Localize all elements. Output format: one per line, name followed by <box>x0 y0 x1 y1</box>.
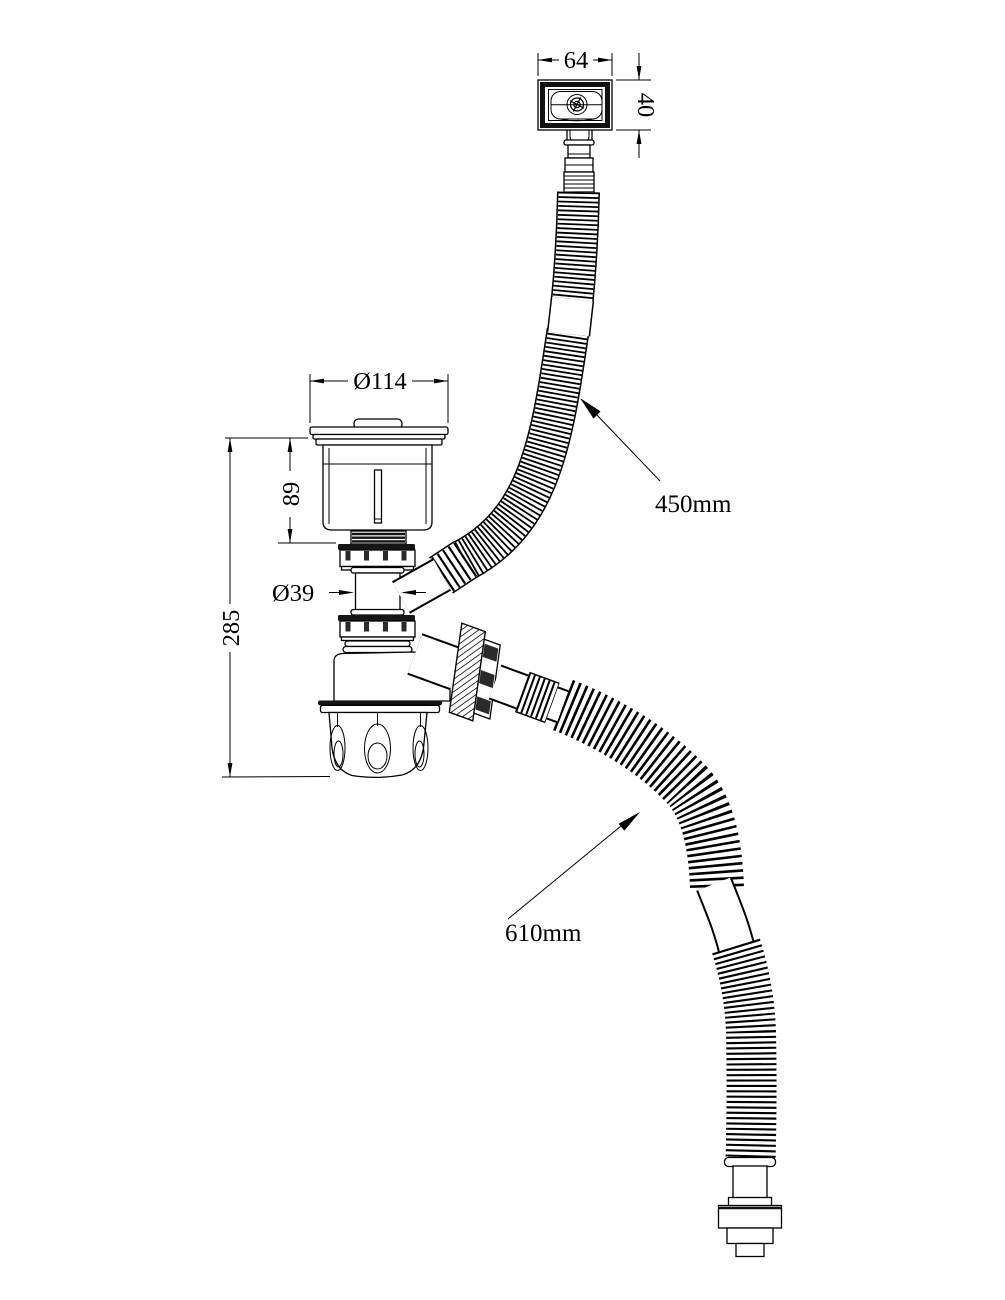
sink-strainer <box>310 419 448 544</box>
dim-text-strainer-height: 89 <box>278 482 305 507</box>
drain-hose-610 <box>563 705 782 1257</box>
dimension-overall-height: 285 <box>218 438 330 777</box>
label-overflow-hose-length: 450mm <box>655 491 732 518</box>
leader-overflow-hose-length: 450mm <box>580 398 732 518</box>
leader-drain-hose-length: 610mm <box>505 812 640 947</box>
outlet-branch-cuff <box>522 692 562 707</box>
leader-arrowhead <box>619 812 640 831</box>
overflow-inlet-connector <box>401 575 442 598</box>
label-drain-hose-length: 610mm <box>505 920 582 947</box>
dim-arrow-bottom <box>637 130 642 144</box>
strainer-divider <box>375 470 382 523</box>
dimension-strainer-diameter: Ø114 <box>310 368 448 423</box>
coupling-nut <box>449 623 501 726</box>
dim-text-overflow-height: 40 <box>632 93 659 118</box>
dim-text-strainer-diameter: Ø114 <box>353 368 407 395</box>
dimension-overflow-height: 40 <box>616 53 659 158</box>
dim-arrow-top <box>637 66 642 80</box>
dim-text-overall-height: 285 <box>218 610 245 647</box>
dimension-strainer-height: 89 <box>225 438 336 543</box>
drain-assembly-drawing: 64 40 <box>0 0 1005 1300</box>
locknut-lower <box>338 615 415 641</box>
technical-drawing-canvas: 64 40 <box>0 0 1005 1300</box>
dim-text-overflow-width: 64 <box>564 47 589 74</box>
dimension-overflow-width: 64 <box>538 47 612 76</box>
trap-rim <box>318 701 442 706</box>
dim-text-pipe-diameter: Ø39 <box>272 580 314 607</box>
tailpipe-tube <box>356 573 401 611</box>
overflow-plate <box>538 80 612 130</box>
overflow-connector-stack <box>564 128 594 192</box>
dim-arrow-left <box>538 58 552 63</box>
overflow-hose-450 <box>441 192 579 576</box>
strainer-flange <box>310 427 448 435</box>
dim-arrow-right <box>598 58 612 63</box>
drain-hose-end-fitting <box>719 1158 782 1257</box>
strainer-thread <box>351 531 406 544</box>
locknut-upper <box>338 544 415 570</box>
